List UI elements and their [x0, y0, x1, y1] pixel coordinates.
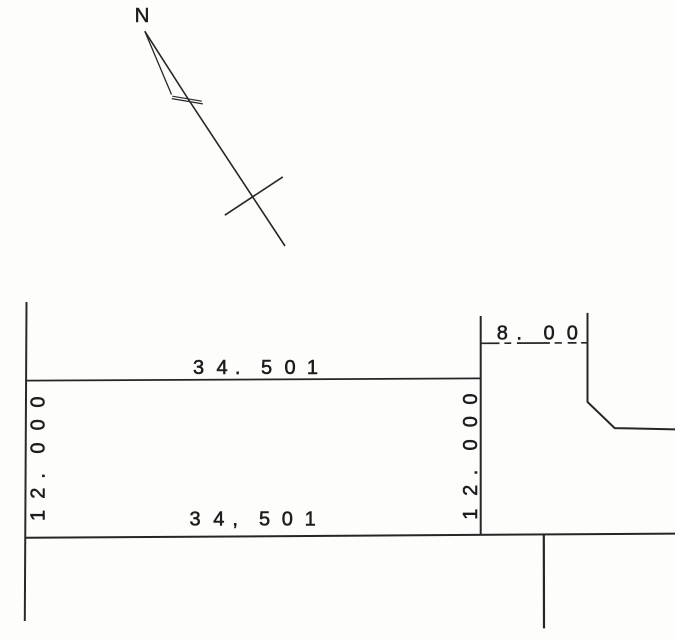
svg-text:0: 0 [28, 396, 50, 407]
svg-text:0: 0 [460, 393, 482, 404]
svg-text:.: . [460, 470, 482, 476]
svg-text:5: 5 [259, 509, 270, 531]
svg-text:1: 1 [305, 509, 316, 531]
svg-text:0: 0 [567, 323, 578, 345]
svg-text:0: 0 [284, 357, 295, 379]
svg-text:2: 2 [460, 485, 482, 496]
svg-text:.: . [235, 357, 241, 379]
svg-text:2: 2 [28, 488, 50, 499]
svg-text:0: 0 [460, 416, 482, 427]
svg-text:3: 3 [193, 357, 204, 379]
svg-text:N: N [135, 4, 150, 27]
svg-text:5: 5 [261, 357, 272, 379]
svg-text:1: 1 [28, 510, 50, 521]
svg-text:0: 0 [543, 323, 554, 345]
svg-text:.: . [516, 323, 522, 345]
svg-text:8: 8 [497, 323, 508, 345]
svg-text:4: 4 [213, 509, 224, 531]
svg-text:.: . [28, 473, 50, 479]
svg-text:0: 0 [282, 509, 293, 531]
svg-text:1: 1 [307, 357, 318, 379]
svg-text:0: 0 [28, 419, 50, 430]
svg-text:0: 0 [460, 439, 482, 450]
svg-text:,: , [232, 509, 238, 531]
svg-text:1: 1 [460, 509, 482, 520]
svg-text:4: 4 [216, 357, 227, 379]
svg-text:0: 0 [28, 442, 50, 453]
svg-text:3: 3 [189, 509, 200, 531]
